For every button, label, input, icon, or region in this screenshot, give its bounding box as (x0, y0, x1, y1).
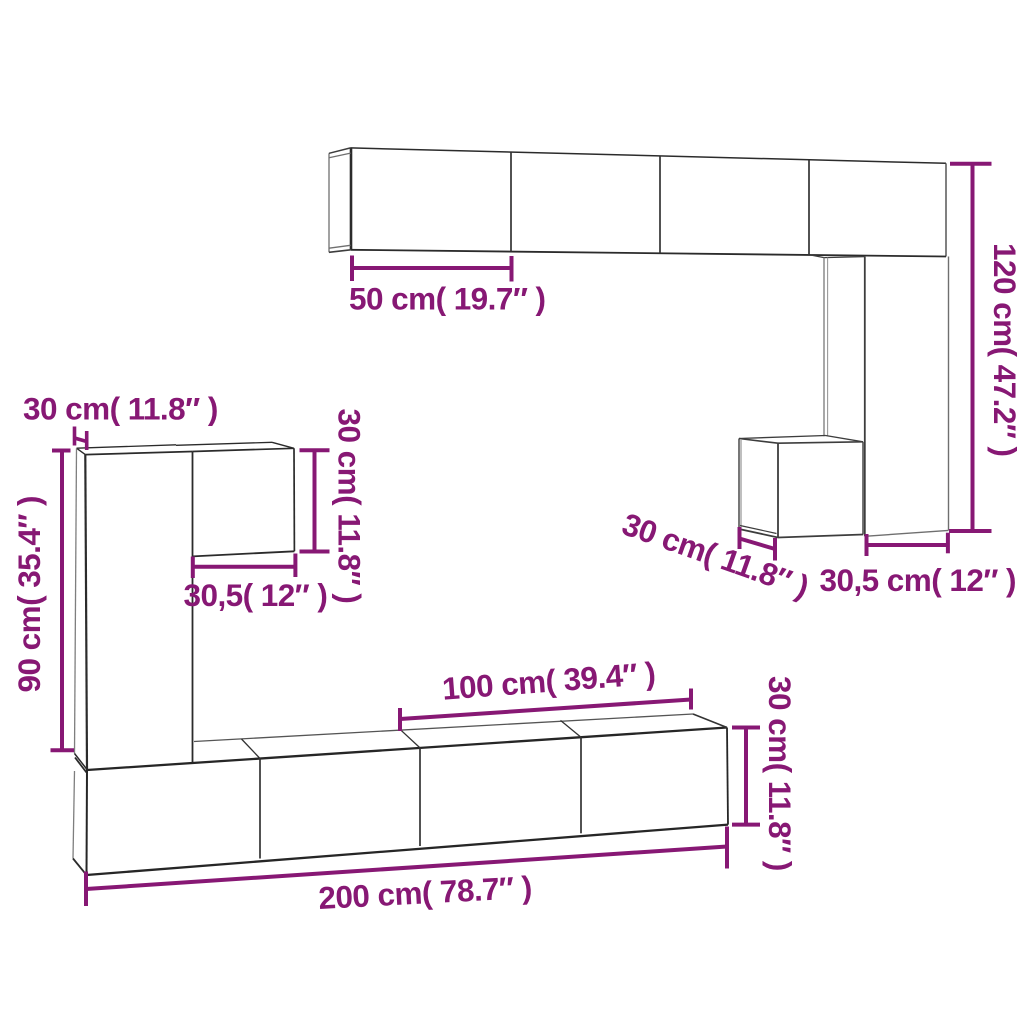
svg-text:120 cm( 47.2″ ): 120 cm( 47.2″ ) (987, 243, 1023, 456)
svg-text:30 cm( 11.8″ ): 30 cm( 11.8″ ) (331, 409, 367, 604)
svg-text:100 cm( 39.4″ ): 100 cm( 39.4″ ) (441, 655, 657, 707)
svg-text:30 cm( 11.8″ ): 30 cm( 11.8″ ) (618, 506, 814, 605)
svg-text:90 cm( 35.4″ ): 90 cm( 35.4″ ) (11, 496, 47, 693)
svg-text:30 cm( 11.8″ ): 30 cm( 11.8″ ) (23, 391, 218, 427)
svg-text:200 cm( 78.7″ ): 200 cm( 78.7″ ) (317, 869, 532, 916)
svg-text:50 cm( 19.7″ ): 50 cm( 19.7″ ) (349, 281, 546, 317)
svg-text:30,5( 12″ ): 30,5( 12″ ) (184, 577, 328, 613)
svg-text:30 cm( 11.8″ ): 30 cm( 11.8″ ) (762, 676, 798, 871)
svg-text:30,5 cm( 12″ ): 30,5 cm( 12″ ) (820, 562, 1017, 598)
